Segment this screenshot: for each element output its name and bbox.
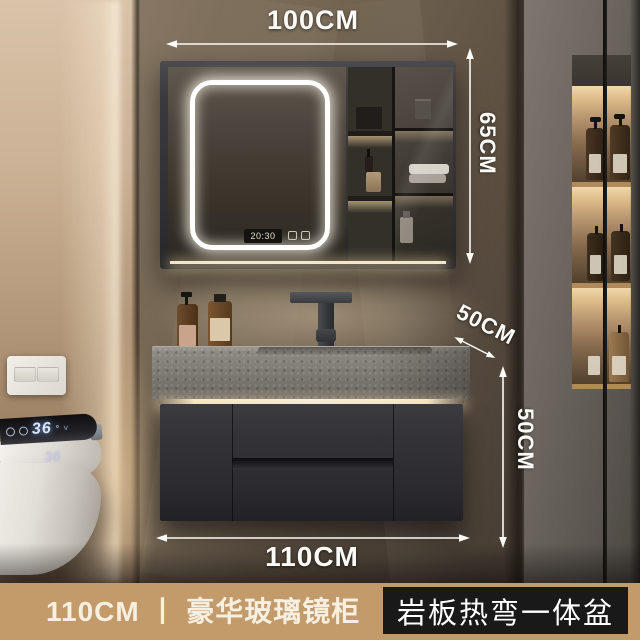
integrated-basin bbox=[258, 347, 432, 355]
toilet-temperature: 36 bbox=[31, 420, 52, 439]
banner-size-text: 110CM 丨 豪华玻璃镜柜 bbox=[46, 583, 360, 640]
niche-top bbox=[572, 55, 631, 86]
bottle-cap bbox=[214, 294, 226, 302]
pump-icon bbox=[181, 292, 192, 297]
dimension-arrow-vertical bbox=[497, 366, 509, 553]
pump-icon bbox=[620, 224, 623, 232]
glass-panel-frame bbox=[603, 0, 607, 583]
black-box-item bbox=[356, 107, 382, 129]
degree-symbol: ° bbox=[55, 423, 59, 433]
pump-icon bbox=[590, 117, 601, 122]
niche-shelves bbox=[572, 86, 631, 389]
bottle-label bbox=[614, 255, 627, 274]
pump-icon bbox=[614, 114, 625, 119]
pump-icon bbox=[595, 226, 598, 234]
under-cabinet-led bbox=[170, 261, 446, 264]
niche-shelf-2 bbox=[572, 187, 631, 288]
dimension-arrow-horizontal bbox=[166, 37, 458, 55]
amber-bottle bbox=[610, 125, 630, 180]
chevron-down-icon: ˅ bbox=[63, 423, 69, 433]
cream-jar bbox=[366, 172, 381, 192]
mirror-cabinet: 20:30 bbox=[160, 61, 456, 269]
bottle-label bbox=[613, 154, 627, 173]
flush-plate bbox=[7, 356, 66, 395]
glass-reflection bbox=[395, 67, 453, 263]
pump-icon bbox=[185, 296, 188, 305]
bathroom-photo: 20:30 bbox=[0, 0, 640, 583]
bottle-label bbox=[590, 255, 601, 274]
open-shelf-column bbox=[348, 67, 392, 263]
bottle-label bbox=[588, 356, 600, 375]
soap-bottle-label bbox=[179, 325, 196, 346]
pump-icon bbox=[618, 325, 621, 333]
dropper-cap bbox=[367, 149, 370, 157]
bottle-label bbox=[589, 154, 601, 173]
faucet-spout bbox=[290, 292, 352, 303]
caption-banner: 110CM 丨 豪华玻璃镜柜 岩板热弯一体盆 bbox=[0, 583, 640, 640]
tan-bottle bbox=[609, 332, 629, 382]
led-light-ring bbox=[190, 80, 330, 250]
amber-bottle bbox=[611, 231, 630, 281]
pump-icon bbox=[594, 121, 597, 129]
display-niche bbox=[572, 55, 631, 400]
shelf-light bbox=[348, 201, 392, 213]
tan-bottle bbox=[585, 336, 603, 382]
amber-bottle bbox=[587, 233, 604, 281]
niche-shelf-1 bbox=[572, 86, 631, 187]
water-temp-icon bbox=[19, 426, 29, 436]
vanity-cabinet bbox=[160, 404, 463, 521]
flush-button-small bbox=[14, 367, 36, 382]
pump-icon bbox=[619, 118, 622, 126]
glass-door bbox=[392, 67, 453, 263]
banner-feature-text: 岩板热弯一体盆 bbox=[397, 590, 614, 632]
shelf-light bbox=[348, 136, 392, 148]
drawer-handle-groove bbox=[232, 458, 393, 470]
defog-icon bbox=[288, 231, 297, 240]
niche-shelf-3 bbox=[572, 288, 631, 389]
light-toggle-icon bbox=[301, 231, 310, 240]
display-reflection: 36 bbox=[43, 445, 94, 470]
right-edge-shadow bbox=[630, 0, 640, 583]
dimension-top-width: 100CM bbox=[213, 5, 413, 36]
soap-bottle-label bbox=[210, 318, 230, 341]
flush-button-large bbox=[37, 367, 59, 382]
dimension-bottom-width: 110CM bbox=[212, 541, 412, 573]
mirror-clock: 20:30 bbox=[244, 229, 282, 243]
faucet-handle bbox=[316, 329, 336, 342]
product-image: 20:30 bbox=[0, 0, 640, 640]
dimension-mirror-height: 65CM bbox=[474, 112, 500, 175]
dimension-cabinet-height: 50CM bbox=[512, 408, 538, 471]
bottle-label bbox=[612, 356, 626, 375]
amber-bottle bbox=[586, 128, 604, 180]
seat-heat-icon bbox=[6, 427, 16, 437]
door-seam bbox=[393, 404, 394, 521]
faucet-body bbox=[318, 303, 334, 351]
banner-feature-tag: 岩板热弯一体盆 bbox=[383, 587, 628, 634]
